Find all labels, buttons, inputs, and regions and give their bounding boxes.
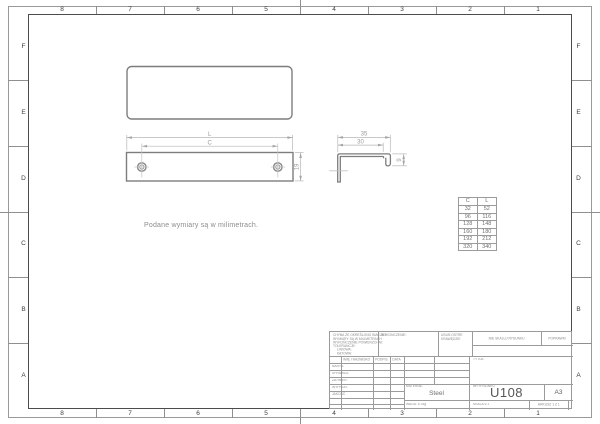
role-mfg-label: WYPROD.	[332, 386, 348, 390]
size-table: C L 32 52 96 116 128 148 160 180 192 212…	[458, 197, 497, 252]
title-block-rule	[472, 345, 573, 346]
name-header-label: IMIĘ I NAZWISKO	[343, 358, 370, 361]
units-note: Podane wymiary są w milimetrach.	[144, 222, 258, 229]
side-view	[330, 154, 391, 182]
title-block-rule	[438, 332, 439, 356]
role-approved-label: ZATWIER.	[332, 379, 348, 383]
tolerance-note-line: WYKOŃCZENIE POWIERZCHNI:	[333, 341, 387, 345]
signature-header-cell: PODPIS	[373, 356, 390, 363]
size-table-header-c: C	[459, 198, 478, 206]
size-table-cell: 128	[459, 220, 478, 228]
size-table-cell: 340	[477, 243, 496, 251]
size-table-cell: 96	[459, 213, 478, 221]
title-block-rule	[330, 363, 469, 364]
size-table-cell: 320	[459, 243, 478, 251]
front-view	[127, 144, 294, 182]
title-block-rule	[373, 356, 374, 410]
title-block-rule	[330, 398, 404, 399]
title-block: CHYBA ŻE OKREŚLONO INACZEJ: WYMIARY SĄ W…	[329, 331, 572, 409]
drawing-number: U108	[490, 385, 523, 400]
title-block-rule	[469, 356, 470, 410]
side-profile-outer	[338, 154, 391, 182]
size-table-cell: 148	[477, 220, 496, 228]
do-not-scale-cell: NIE SKALUJ RYSUNKU	[472, 332, 541, 345]
revision-cell: POPRAWKI	[541, 332, 573, 345]
tolerance-note-line: TOLERANCJE:	[333, 344, 387, 348]
side-profile-inner	[338, 157, 384, 183]
dim-label-depth-outer: 35	[361, 132, 368, 138]
dim-label-depth-inner: 30	[357, 139, 364, 145]
top-view	[127, 67, 292, 120]
material-value: Steel	[429, 390, 444, 397]
size-table-header-l: L	[477, 198, 496, 206]
drawing-sheet: 8 7 6 5 4 3 2 1 8 7 6 5 4 3 2 1 F E D C …	[0, 0, 600, 424]
date-header-cell: DATA	[390, 356, 404, 363]
size-table-cell: 180	[477, 228, 496, 236]
sheet-cell: ARKUSZ 1 Z 1	[529, 400, 568, 410]
weight-label: WAGA: 5.78g	[406, 403, 426, 407]
tolerance-note-line: KĄTOWA:	[333, 352, 387, 356]
title-block-rule	[330, 370, 469, 371]
sheet-label: ARKUSZ 1 Z 1	[538, 403, 560, 406]
tolerance-note-line: CHYBA ŻE OKREŚLONO INACZEJ:	[333, 334, 387, 338]
title-label: TYTUŁ:	[473, 358, 484, 362]
name-header-cell: IMIĘ I NAZWISKO	[341, 356, 373, 363]
dim-label-length: L	[208, 132, 212, 138]
dwg-number-cell: U108	[469, 384, 544, 400]
deburr-note: USUŃ OSTRE KRAWĘDZIE	[441, 334, 463, 341]
dim-label-height: 19	[294, 163, 300, 170]
size-table-cell: 52	[477, 205, 496, 213]
finish-label: WYKOŃCZENIE:	[381, 334, 406, 338]
dimension-lines	[127, 135, 407, 181]
title-block-rule	[330, 404, 404, 405]
title-block-rule	[330, 377, 469, 378]
size-table-cell: 116	[477, 213, 496, 221]
title-block-rule	[404, 356, 405, 410]
role-drawn-label: NARYS.	[332, 365, 344, 369]
title-block-rule	[568, 400, 569, 410]
paper-size: A3	[555, 389, 563, 396]
material-value-cell: Steel	[404, 386, 469, 400]
size-table-cell: 160	[459, 228, 478, 236]
tolerance-notes: CHYBA ŻE OKREŚLONO INACZEJ: WYMIARY SĄ W…	[333, 334, 387, 356]
size-table-cell: 32	[459, 205, 478, 213]
dim-label-lip: 9	[397, 158, 403, 162]
role-checked-label: SPRAWDZ.	[332, 372, 349, 376]
hole-center-marks	[135, 144, 286, 178]
signature-header-label: PODPIS	[375, 358, 387, 361]
revision-label: POPRAWKI	[548, 337, 566, 340]
title-block-rule	[330, 391, 404, 392]
do-not-scale-label: NIE SKALUJ RYSUNKU	[489, 337, 525, 340]
date-header-label: DATA	[393, 358, 401, 361]
scale-label: SKALA:1:1	[473, 403, 489, 407]
dim-label-centers: C	[208, 140, 213, 146]
title-block-rule	[390, 356, 391, 410]
role-qa-label: JAKOŚĆ	[332, 393, 345, 397]
deburr-note-line: KRAWĘDZIE	[441, 337, 463, 341]
deburr-note-line: USUŃ OSTRE	[441, 334, 463, 338]
tolerance-note-line: LINIOWA:	[333, 348, 387, 352]
size-table-cell: 212	[477, 235, 496, 243]
paper-size-cell: A3	[544, 384, 573, 400]
size-table-cell: 192	[459, 235, 478, 243]
